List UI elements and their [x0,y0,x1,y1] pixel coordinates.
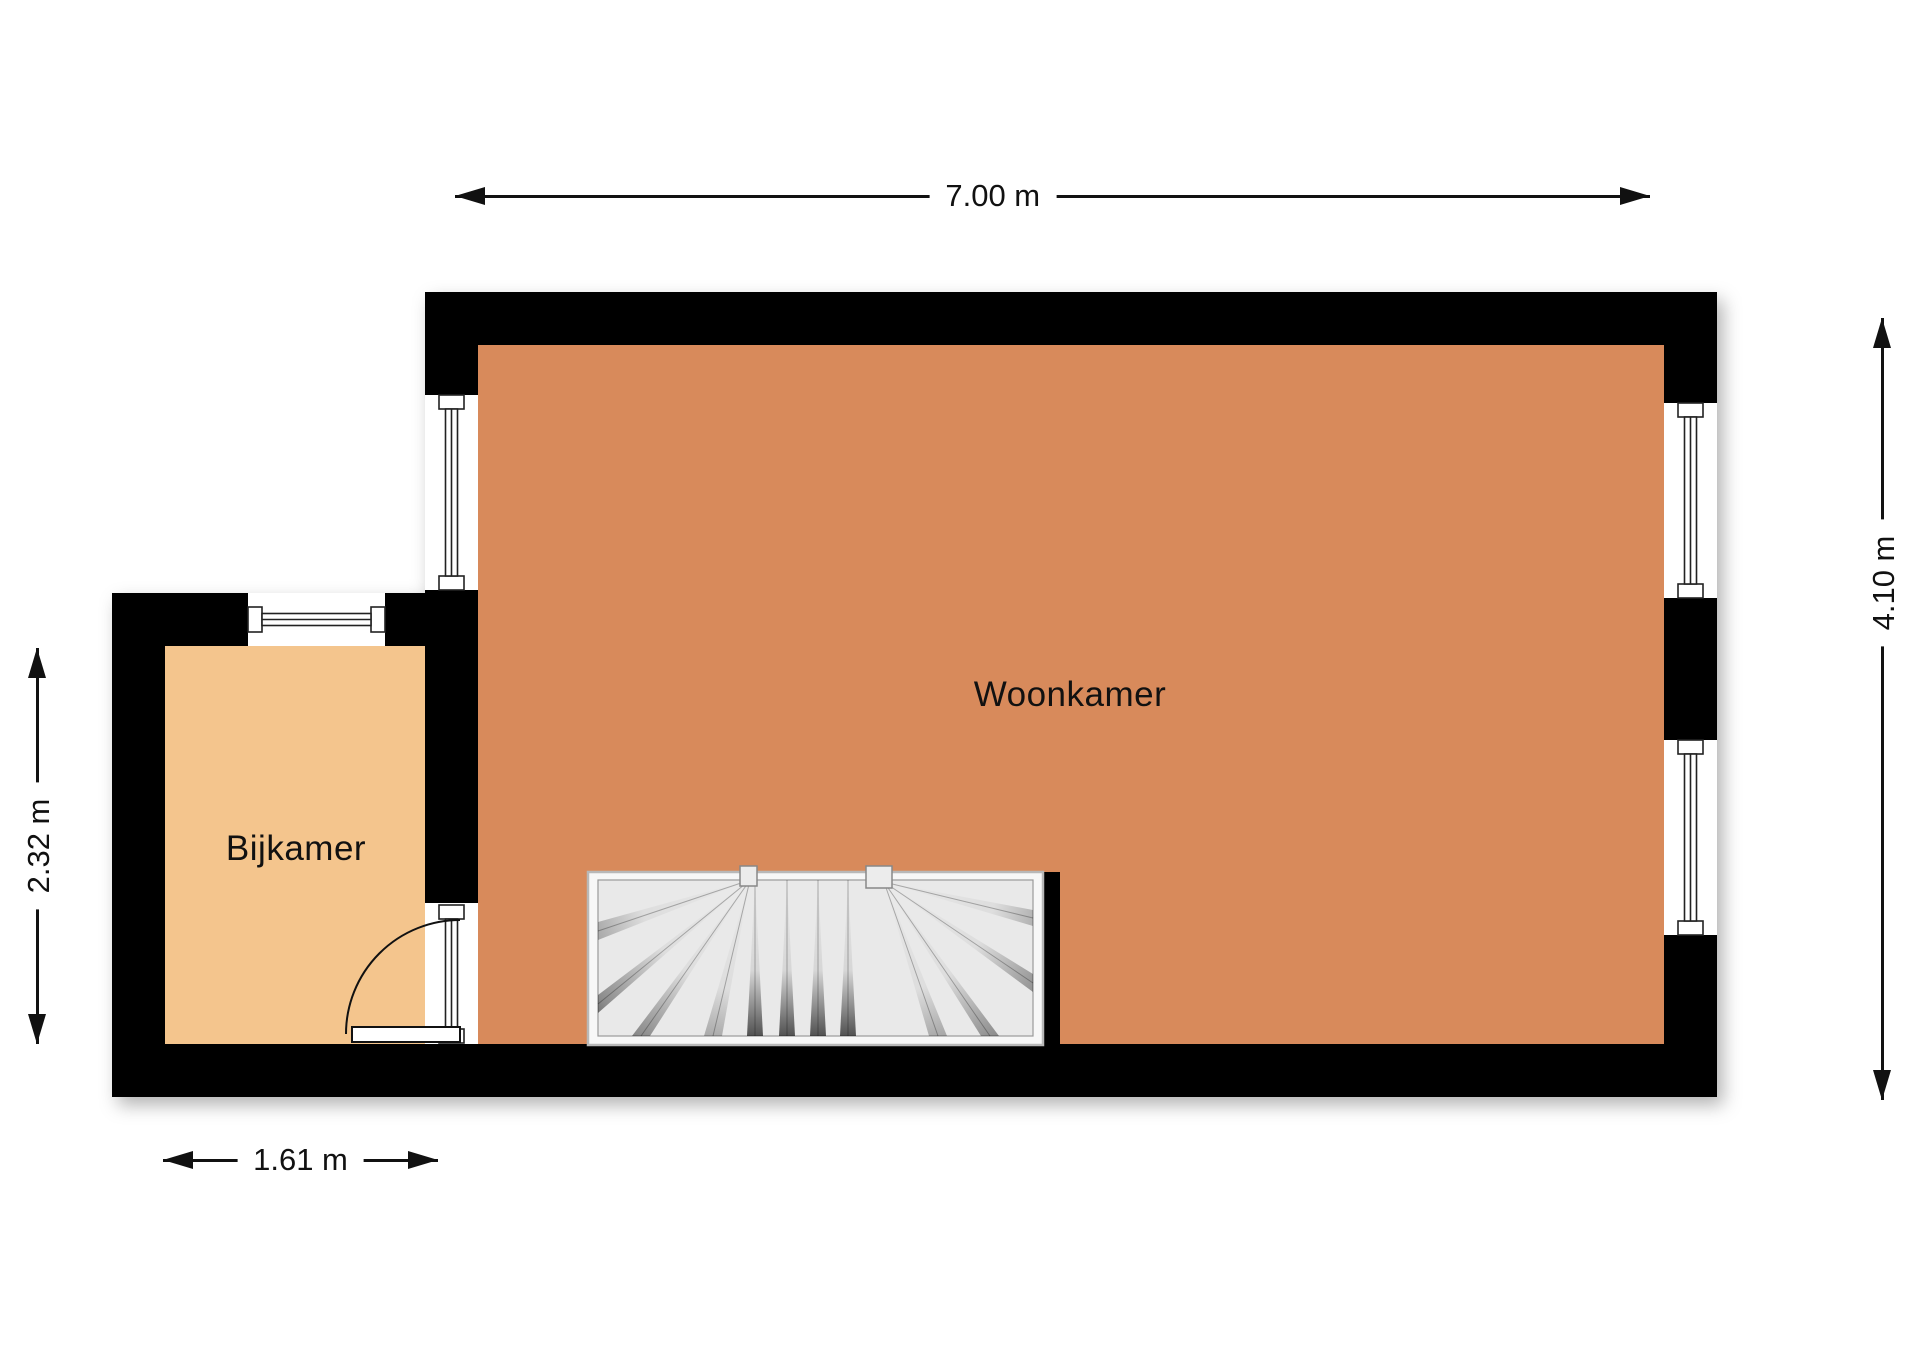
floorplan-canvas: Woonkamer Bijkamer 7.00 m 4.10 m 2.32 m … [0,0,1920,1358]
window-opening-right-lower [1664,740,1717,935]
dimension-label: 7.00 m [929,179,1056,213]
arrow-down-icon [1873,1070,1891,1100]
wall-stair-stub [1043,872,1060,1044]
dimension-line [1881,318,1884,1100]
room-label-bijkamer: Bijkamer [226,829,366,869]
arrow-right-icon [408,1151,438,1169]
arrow-up-icon [28,648,46,678]
arrow-right-icon [1620,187,1650,205]
dimension-label: 1.61 m [237,1143,364,1177]
dimension-label: 2.32 m [21,783,55,910]
arrow-left-icon [163,1151,193,1169]
arrow-left-icon [455,187,485,205]
arrow-up-icon [1873,318,1891,348]
arrow-down-icon [28,1014,46,1044]
window-opening-bijkamer-top [248,593,385,646]
room-label-woonkamer: Woonkamer [974,675,1167,715]
door-opening [425,903,478,1044]
window-opening-left [425,395,478,590]
window-opening-right-upper [1664,403,1717,598]
dimension-label: 4.10 m [1866,520,1900,647]
